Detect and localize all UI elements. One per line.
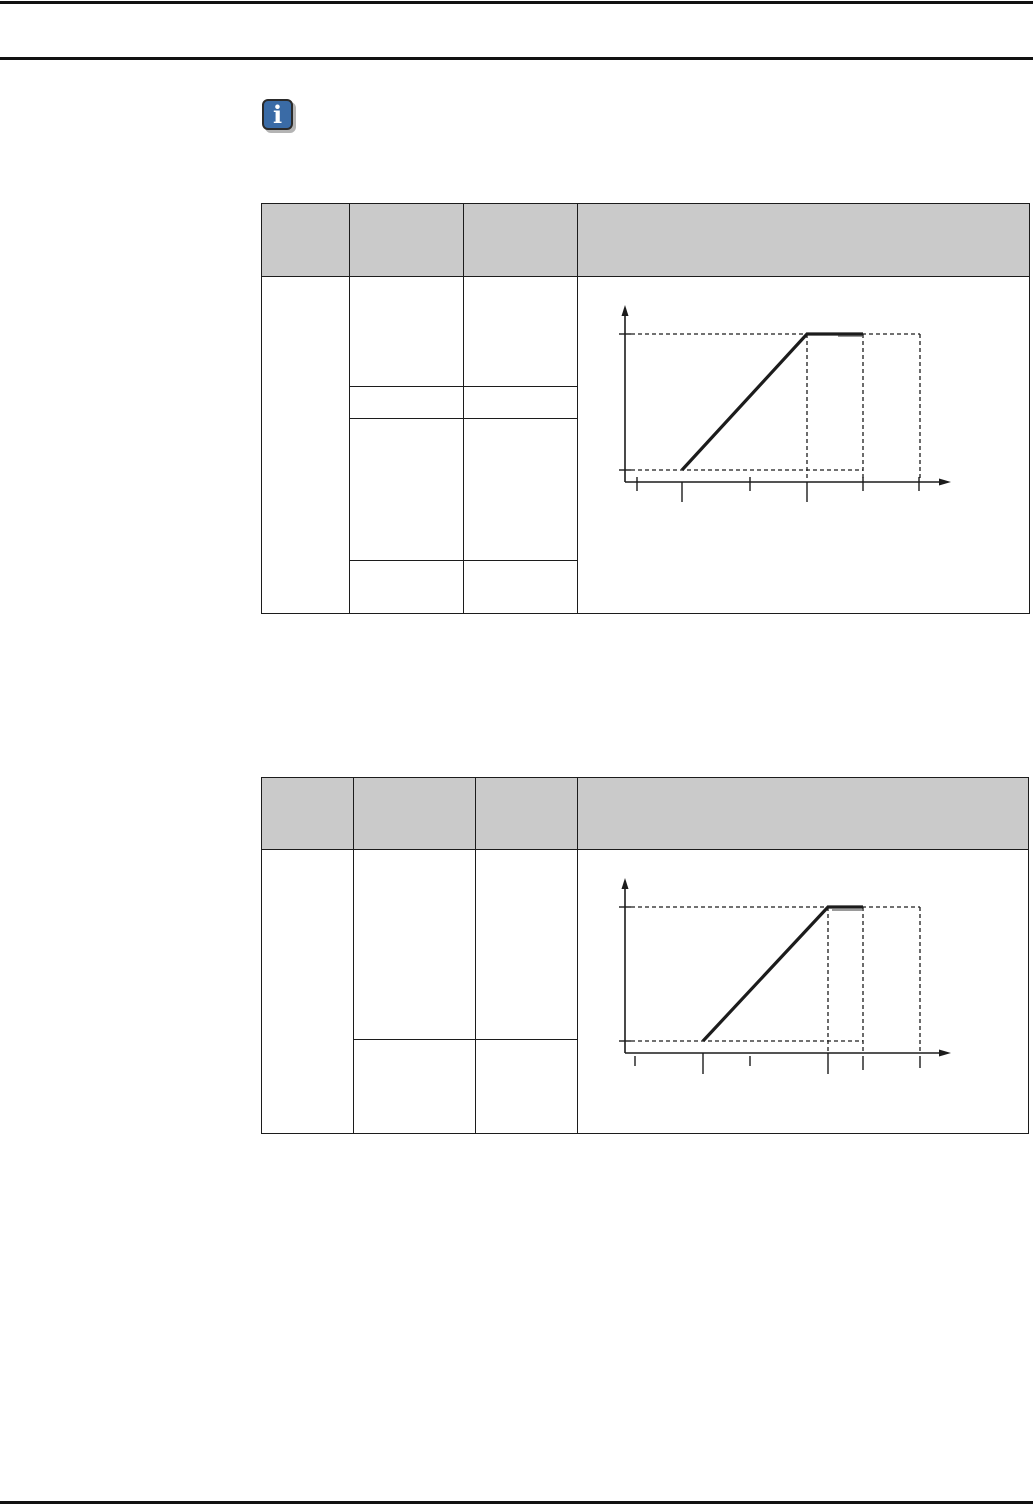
table-2-header-cell-1: [262, 778, 354, 849]
page-top-rule: [0, 1, 1033, 4]
table-1-body: [262, 277, 1029, 613]
table-row: [354, 1040, 577, 1133]
info-icon-glyph: i: [273, 102, 282, 127]
table-1-header-cell-1: [262, 204, 350, 276]
table-1-header-cell-2: [350, 204, 464, 276]
table-cell: [350, 277, 464, 386]
table-2-col1-cell: [262, 850, 354, 1133]
table-cell: [464, 419, 577, 560]
table-2-header-cell-4: [578, 778, 1028, 849]
table-cell: [476, 1040, 577, 1133]
table-row: [350, 387, 577, 419]
table-cell: [464, 277, 577, 386]
spec-table-1: [261, 203, 1030, 614]
page-header-rule: [0, 57, 1033, 60]
table-1-figure-cell: [578, 277, 1029, 613]
table-2-header-row: [262, 778, 1028, 850]
table-cell: [350, 387, 464, 418]
table-cell: [476, 850, 577, 1039]
table-row: [350, 277, 577, 387]
table-1-col2-3-group: [350, 277, 578, 613]
table-cell: [354, 1040, 476, 1133]
table-1-header-cell-4: [578, 204, 1029, 276]
table-1-header-cell-3: [464, 204, 578, 276]
table-row: [350, 561, 577, 613]
page-footer-rule: [0, 1501, 1033, 1504]
table-2-header-cell-3: [476, 778, 578, 849]
table-cell: [350, 419, 464, 560]
table-1-header-row: [262, 204, 1029, 277]
spec-table-2: [261, 777, 1029, 1134]
info-icon: i: [262, 99, 293, 130]
table-cell: [350, 561, 464, 613]
table-2-figure-cell: [578, 850, 1028, 1133]
table-2-body: [262, 850, 1028, 1133]
table-cell: [464, 387, 577, 418]
table-1-col1-cell: [262, 277, 350, 613]
table-cell: [354, 850, 476, 1039]
table-2-col2-3-group: [354, 850, 578, 1133]
document-page: i: [0, 0, 1033, 1506]
table-row: [354, 850, 577, 1040]
table-2-header-cell-2: [354, 778, 476, 849]
table-cell: [464, 561, 577, 613]
table-row: [350, 419, 577, 561]
